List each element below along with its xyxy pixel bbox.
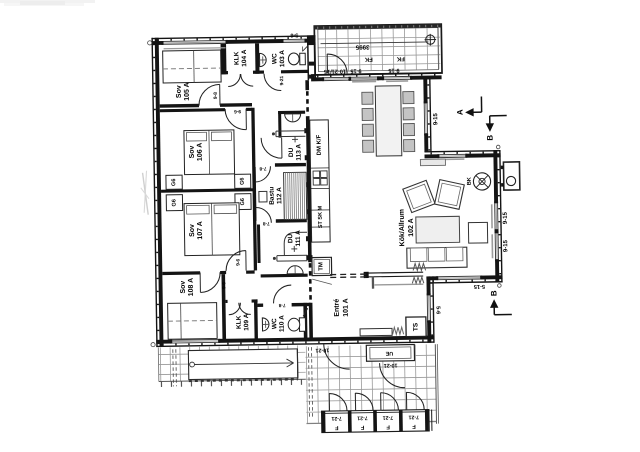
svg-text:110 A: 110 A	[279, 315, 286, 332]
svg-text:7-21: 7-21	[408, 414, 419, 420]
svg-text:A: A	[456, 109, 465, 115]
svg-text:102 A: 102 A	[408, 218, 415, 237]
svg-text:G6: G6	[171, 199, 177, 206]
svg-text:9-15: 9-15	[388, 67, 399, 73]
svg-text:FK: FK	[364, 56, 373, 62]
svg-text:WC: WC	[271, 53, 278, 64]
svg-text:Entré: Entré	[334, 299, 341, 317]
svg-text:DU: DU	[287, 233, 294, 243]
svg-text:7-21: 7-21	[331, 415, 342, 421]
svg-text:G6: G6	[240, 198, 246, 205]
svg-text:109 A: 109 A	[243, 313, 250, 331]
svg-text:Bastu: Bastu	[268, 187, 275, 205]
svg-text:BK: BK	[467, 177, 473, 185]
svg-text:5-6: 5-6	[290, 32, 298, 38]
svg-text:7-8: 7-8	[278, 302, 285, 308]
svg-text:F: F	[360, 424, 364, 430]
svg-text:Sov: Sov	[189, 145, 196, 158]
svg-text:7-8: 7-8	[263, 220, 270, 226]
svg-text:DU: DU	[288, 147, 295, 157]
svg-text:112 A: 112 A	[276, 187, 283, 204]
svg-text:3995: 3995	[355, 43, 369, 50]
svg-text:9-8: 9-8	[213, 92, 219, 99]
svg-text:111 A: 111 A	[295, 230, 302, 247]
svg-text:106 A: 106 A	[197, 143, 204, 162]
svg-text:G6: G6	[240, 177, 246, 184]
svg-text:F: F	[412, 423, 416, 429]
svg-text:KLK: KLK	[236, 315, 243, 329]
svg-text:ST SK M: ST SK M	[318, 205, 324, 228]
svg-text:7-8: 7-8	[259, 165, 266, 171]
svg-text:104 A: 104 A	[241, 49, 248, 67]
svg-text:9-15: 9-15	[503, 239, 509, 252]
svg-text:Sov: Sov	[189, 224, 196, 237]
svg-text:9-15: 9-15	[503, 211, 509, 224]
svg-text:10-21: 10-21	[384, 362, 398, 368]
svg-text:Sov: Sov	[176, 85, 183, 98]
svg-text:UE: UE	[385, 350, 393, 356]
svg-text:DM K/F: DM K/F	[316, 134, 322, 155]
svg-text:107 A: 107 A	[197, 221, 204, 240]
svg-text:F: F	[386, 423, 390, 429]
svg-text:Sov: Sov	[180, 281, 187, 294]
svg-text:9-15: 9-15	[350, 67, 361, 73]
svg-text:9-6: 9-6	[221, 282, 227, 289]
svg-text:101 A: 101 A	[343, 298, 350, 317]
svg-text:103 A: 103 A	[279, 50, 286, 68]
svg-text:Kök/Allrum: Kök/Allrum	[399, 209, 407, 246]
svg-text:9-6: 9-6	[235, 258, 241, 265]
svg-text:9-21: 9-21	[279, 75, 285, 85]
svg-text:108 A: 108 A	[188, 278, 195, 297]
svg-text:7-21: 7-21	[383, 414, 394, 420]
svg-text:105 A: 105 A	[184, 82, 191, 101]
svg-text:FK: FK	[396, 55, 405, 61]
svg-text:WC: WC	[271, 318, 278, 329]
svg-text:TM: TM	[318, 262, 324, 271]
svg-text:TS: TS	[412, 322, 419, 331]
svg-text:5-6: 5-6	[434, 306, 440, 314]
svg-text:7-21: 7-21	[357, 414, 368, 420]
svg-text:KLK: KLK	[233, 51, 240, 65]
svg-text:9-6: 9-6	[234, 108, 241, 114]
svg-text:F: F	[334, 424, 338, 430]
svg-text:5-15: 5-15	[474, 283, 485, 289]
svg-text:B: B	[485, 135, 494, 141]
svg-text:10-21: 10-21	[315, 347, 329, 353]
svg-text:113 A: 113 A	[295, 144, 302, 161]
svg-text:9-15: 9-15	[433, 112, 439, 125]
svg-text:B: B	[489, 290, 498, 296]
svg-text:G6: G6	[171, 179, 177, 186]
